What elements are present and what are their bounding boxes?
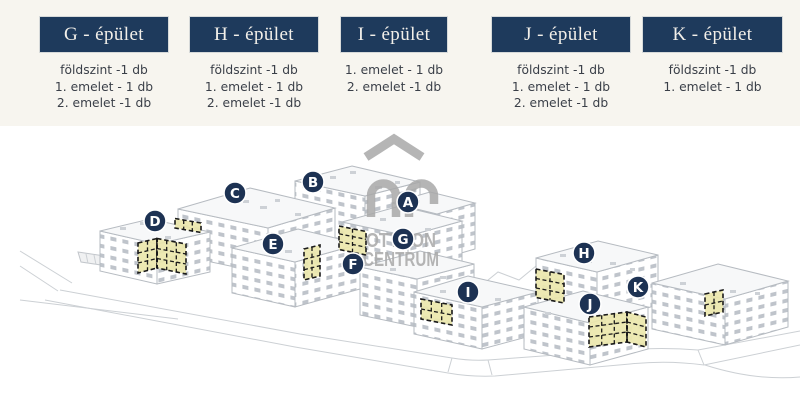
availability-item: földszint -1 db xyxy=(190,62,318,79)
column-g-epulet: G - épület földszint -1 db 1. emelet - 1… xyxy=(40,17,168,112)
availability-item: földszint -1 db xyxy=(492,62,630,79)
availability-list-i: 1. emelet - 1 db 2. emelet -1 db xyxy=(324,62,464,95)
building-marker-j[interactable]: J xyxy=(579,293,601,315)
watermark-line2: CENTRUM xyxy=(363,249,439,271)
availability-list-k: földszint -1 db 1. emelet - 1 db xyxy=(643,62,782,95)
building-marker-b[interactable]: B xyxy=(302,171,324,193)
building-marker-c[interactable]: C xyxy=(224,182,246,204)
highlight-building-j xyxy=(589,312,646,347)
highlight-building-h xyxy=(536,269,564,303)
button-j-epulet[interactable]: J - épület xyxy=(492,17,630,52)
column-h-epulet: H - épület földszint -1 db 1. emelet - 1… xyxy=(190,17,318,112)
availability-item: 1. emelet - 1 db xyxy=(643,79,782,96)
building-marker-f[interactable]: F xyxy=(342,253,364,275)
building-marker-g[interactable]: G xyxy=(392,228,414,250)
availability-list-h: földszint -1 db 1. emelet - 1 db 2. emel… xyxy=(190,62,318,112)
building-marker-k[interactable]: K xyxy=(627,276,649,298)
building-marker-i[interactable]: I xyxy=(457,281,479,303)
building-marker-h[interactable]: H xyxy=(573,242,595,264)
availability-item: földszint -1 db xyxy=(40,62,168,79)
page: G - épület földszint -1 db 1. emelet - 1… xyxy=(0,0,800,404)
highlight-building-d xyxy=(138,239,186,275)
building-marker-e[interactable]: E xyxy=(262,233,284,255)
availability-item: 1. emelet - 1 db xyxy=(324,62,464,79)
availability-header: G - épület földszint -1 db 1. emelet - 1… xyxy=(0,0,800,126)
building-marker-d[interactable]: D xyxy=(144,210,166,232)
column-k-epulet: K - épület földszint -1 db 1. emelet - 1… xyxy=(643,17,782,95)
button-i-epulet[interactable]: I - épület xyxy=(341,17,447,52)
button-h-epulet[interactable]: H - épület xyxy=(190,17,318,52)
column-i-epulet: I - épület 1. emelet - 1 db 2. emelet -1… xyxy=(341,17,447,95)
column-j-epulet: J - épület földszint -1 db 1. emelet - 1… xyxy=(492,17,630,112)
availability-item: 2. emelet -1 db xyxy=(324,79,464,96)
button-g-epulet[interactable]: G - épület xyxy=(40,17,168,52)
availability-item: 1. emelet - 1 db xyxy=(492,79,630,96)
availability-item: 2. emelet -1 db xyxy=(40,95,168,112)
highlight-building-e xyxy=(304,245,320,280)
logo-chevron-icon xyxy=(366,139,422,157)
availability-list-g: földszint -1 db 1. emelet - 1 db 2. emel… xyxy=(40,62,168,112)
highlight-building-g xyxy=(339,226,366,255)
availability-item: 1. emelet - 1 db xyxy=(190,79,318,96)
availability-item: földszint -1 db xyxy=(643,62,782,79)
building-marker-a[interactable]: A xyxy=(397,191,419,213)
button-k-epulet[interactable]: K - épület xyxy=(643,17,782,52)
availability-item: 2. emelet -1 db xyxy=(492,95,630,112)
availability-item: 1. emelet - 1 db xyxy=(40,79,168,96)
availability-item: 2. emelet -1 db xyxy=(190,95,318,112)
highlight-building-k xyxy=(705,290,723,316)
availability-list-j: földszint -1 db 1. emelet - 1 db 2. emel… xyxy=(492,62,630,112)
